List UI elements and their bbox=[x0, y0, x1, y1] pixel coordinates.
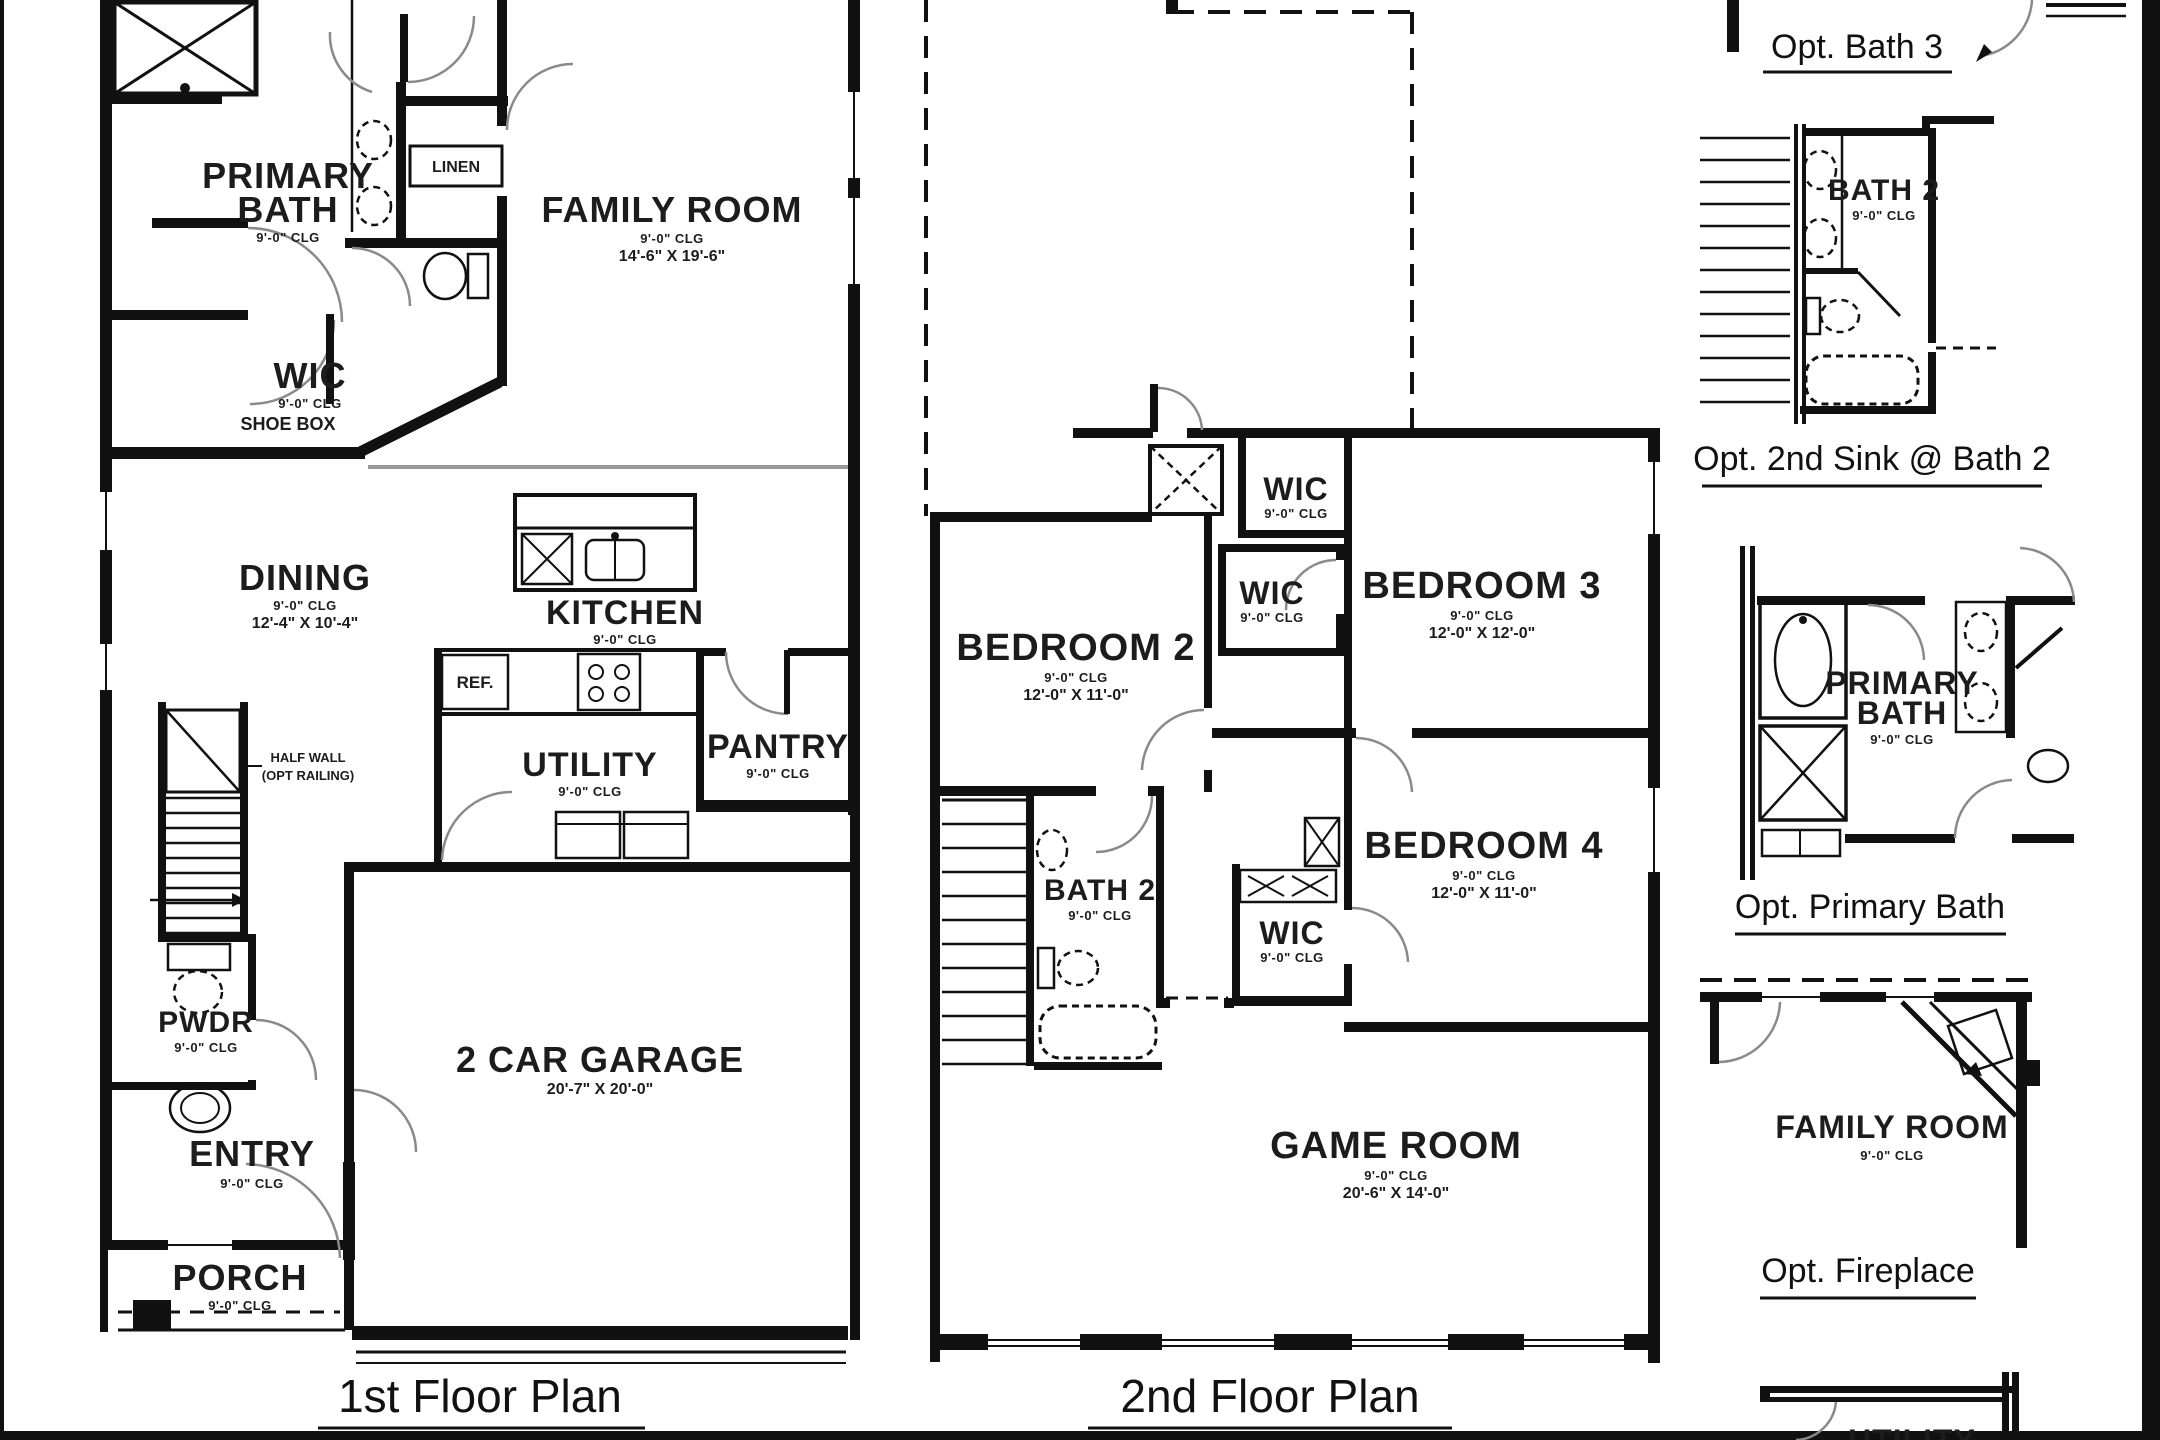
floor2-bath2-clg: 9'-0" CLG bbox=[1068, 908, 1132, 923]
game-room-dims: 20'-6" X 14'-0" bbox=[1343, 1185, 1449, 1202]
opt-bath3-detail: Opt. Bath 3 bbox=[1727, 0, 2126, 72]
shoe-box-label: SHOE BOX bbox=[240, 414, 335, 434]
half-wall-line2: (OPT RAILING) bbox=[262, 768, 354, 783]
utility-clg: 9'-0" CLG bbox=[558, 784, 622, 799]
opt-primary-detail-clg: 9'-0" CLG bbox=[1870, 732, 1934, 747]
primary-bath-clg: 9'-0" CLG bbox=[256, 230, 320, 245]
opt-family-room-detail-label: FAMILY ROOM bbox=[1775, 1109, 2008, 1145]
washer-dryer-icon bbox=[556, 812, 688, 858]
family-room-clg: 9'-0" CLG bbox=[640, 231, 704, 246]
primary-bath-sinks-icon bbox=[352, 0, 391, 232]
wic-low-label: WIC bbox=[1259, 915, 1324, 951]
wic-clg: 9'-0" CLG bbox=[278, 396, 342, 411]
first-floor-title-text: 1st Floor Plan bbox=[338, 1370, 622, 1422]
pwdr-clg: 9'-0" CLG bbox=[174, 1040, 238, 1055]
floorplan-drawing: PRIMARY BATH 9'-0" CLG LINEN WIC 9'-0" C… bbox=[0, 0, 2160, 1440]
kitchen-clg: 9'-0" CLG bbox=[593, 632, 657, 647]
opt-b ath2-detail-clg: 9'-0" CLG bbox=[1852, 208, 1916, 223]
bedroom3-dims: 12'-0" X 12'-0" bbox=[1429, 625, 1535, 642]
floor2-shower-icon bbox=[1150, 446, 1222, 514]
primary-bath-label2: BATH bbox=[237, 189, 338, 230]
floorplan-sheet: PRIMARY BATH 9'-0" CLG LINEN WIC 9'-0" C… bbox=[0, 0, 2160, 1440]
second-floor-title-text: 2nd Floor Plan bbox=[1120, 1370, 1419, 1422]
garage-label: 2 CAR GARAGE bbox=[456, 1039, 744, 1080]
wic-mid-clg: 9'-0" CLG bbox=[1240, 610, 1304, 625]
bedroom3-label: BEDROOM 3 bbox=[1362, 565, 1601, 607]
family-room-dims: 14'-6" X 19'-6" bbox=[619, 248, 725, 265]
opt-2nd-sink-detail: BATH 2 9'-0" CLG Opt. 2nd Sink @ Bath 2 bbox=[1693, 116, 2051, 486]
opt-utility-detail: UTILITY bbox=[1760, 1372, 2019, 1440]
game-room-label: GAME ROOM bbox=[1270, 1125, 1522, 1167]
pantry-clg: 9'-0" CLG bbox=[746, 766, 810, 781]
primary-toilet-icon bbox=[424, 253, 488, 299]
porch-clg: 9'-0" CLG bbox=[208, 1298, 272, 1313]
floor2-bath2-label: BATH 2 bbox=[1044, 874, 1156, 907]
opt-utility-detail-label: UTILITY bbox=[1848, 1423, 1976, 1440]
utility-label: UTILITY bbox=[522, 746, 657, 784]
garage-dims: 20'-7" X 20'-0" bbox=[547, 1081, 653, 1098]
second-floor-plan: BEDROOM 2 9'-0" CLG 12'-0" X 11'-0" BEDR… bbox=[926, 0, 1660, 1428]
bedroom4-label: BEDROOM 4 bbox=[1364, 825, 1603, 867]
entry-clg: 9'-0" CLG bbox=[220, 1176, 284, 1191]
linen-label: LINEN bbox=[432, 159, 480, 176]
bedroom3-clg: 9'-0" CLG bbox=[1450, 608, 1514, 623]
opt-bath2-detail-label: BATH 2 bbox=[1828, 174, 1940, 207]
detail-stairs bbox=[1700, 138, 1790, 402]
opt-family-room-detail-clg: 9'-0" CLG bbox=[1860, 1148, 1924, 1163]
bedroom2-clg: 9'-0" CLG bbox=[1044, 670, 1108, 685]
bedroom2-label: BEDROOM 2 bbox=[956, 627, 1195, 669]
pantry-label: PANTRY bbox=[707, 728, 849, 766]
dining-dims: 12'-4" X 10'-4" bbox=[252, 615, 358, 632]
opt-bath3-label: Opt. Bath 3 bbox=[1771, 28, 1943, 66]
opt-primary-bath-detail: PRIMARY BATH 9'-0" CLG Opt. Primary Bath bbox=[1735, 546, 2075, 934]
opt-2nd-sink-label: Opt. 2nd Sink @ Bath 2 bbox=[1693, 440, 2051, 478]
bedroom2-dims: 12'-0" X 11'-0" bbox=[1023, 687, 1129, 704]
wic-low-clg: 9'-0" CLG bbox=[1260, 950, 1324, 965]
second-floor-title: 2nd Floor Plan bbox=[1088, 1370, 1452, 1428]
half-wall-note: HALF WALL (OPT RAILING) bbox=[246, 750, 354, 783]
kitchen-label: KITCHEN bbox=[546, 594, 704, 632]
opt-fireplace-label: Opt. Fireplace bbox=[1761, 1252, 1975, 1290]
first-floor-plan: PRIMARY BATH 9'-0" CLG LINEN WIC 9'-0" C… bbox=[100, 0, 860, 1428]
primary-bath-shower-icon bbox=[114, 2, 256, 94]
options-column: Opt. Bath 3 bbox=[1693, 0, 2126, 1440]
bedroom4-clg: 9'-0" CLG bbox=[1452, 868, 1516, 883]
floor2-bath2-fixtures bbox=[1037, 830, 1156, 1058]
floor2-wic-dresser-icon bbox=[1240, 818, 1339, 902]
opt-primary-detail-line2: BATH bbox=[1857, 695, 1948, 731]
wic-mid-label: WIC bbox=[1239, 575, 1304, 611]
half-wall-line1: HALF WALL bbox=[270, 750, 345, 765]
wic-label: WIC bbox=[274, 355, 347, 396]
dining-label: DINING bbox=[239, 557, 371, 598]
ref-label: REF. bbox=[457, 673, 494, 692]
game-room-clg: 9'-0" CLG bbox=[1364, 1168, 1428, 1183]
stairs-second-floor bbox=[942, 800, 1026, 1064]
pwdr-label: PWDR bbox=[158, 1006, 254, 1039]
opt-fireplace-detail: FAMILY ROOM 9'-0" CLG Opt. Fireplace bbox=[1700, 980, 2040, 1298]
opt-primary-bath-label: Opt. Primary Bath bbox=[1735, 888, 2005, 926]
family-room-label: FAMILY ROOM bbox=[541, 189, 802, 230]
kitchen-island-icon bbox=[515, 495, 695, 590]
wic-top-label: WIC bbox=[1263, 471, 1328, 507]
first-floor-title: 1st Floor Plan bbox=[318, 1370, 645, 1428]
porch-label: PORCH bbox=[172, 1257, 307, 1298]
bedroom4-dims: 12'-0" X 11'-0" bbox=[1431, 885, 1537, 902]
dining-clg: 9'-0" CLG bbox=[273, 598, 337, 613]
wic-top-clg: 9'-0" CLG bbox=[1264, 506, 1328, 521]
entry-label: ENTRY bbox=[189, 1133, 315, 1174]
